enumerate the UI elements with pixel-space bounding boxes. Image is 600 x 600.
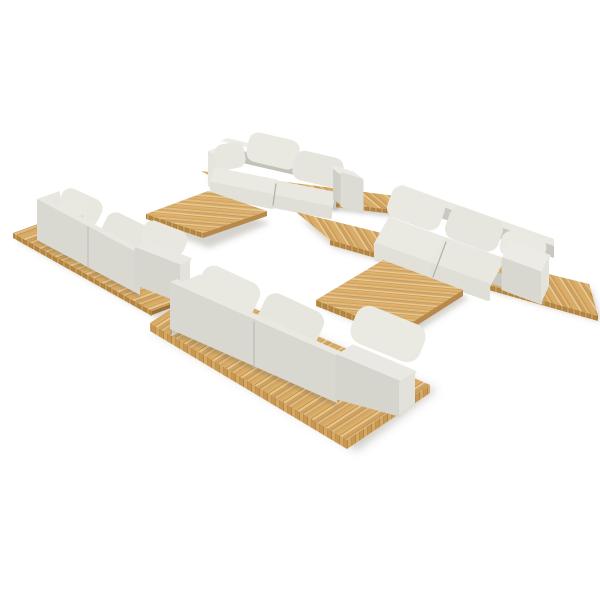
product-render xyxy=(0,0,600,600)
lounge-set-scene xyxy=(0,0,600,600)
top-sofa-arm-front xyxy=(342,174,362,212)
top-sofa-corner-pillow xyxy=(213,141,247,172)
